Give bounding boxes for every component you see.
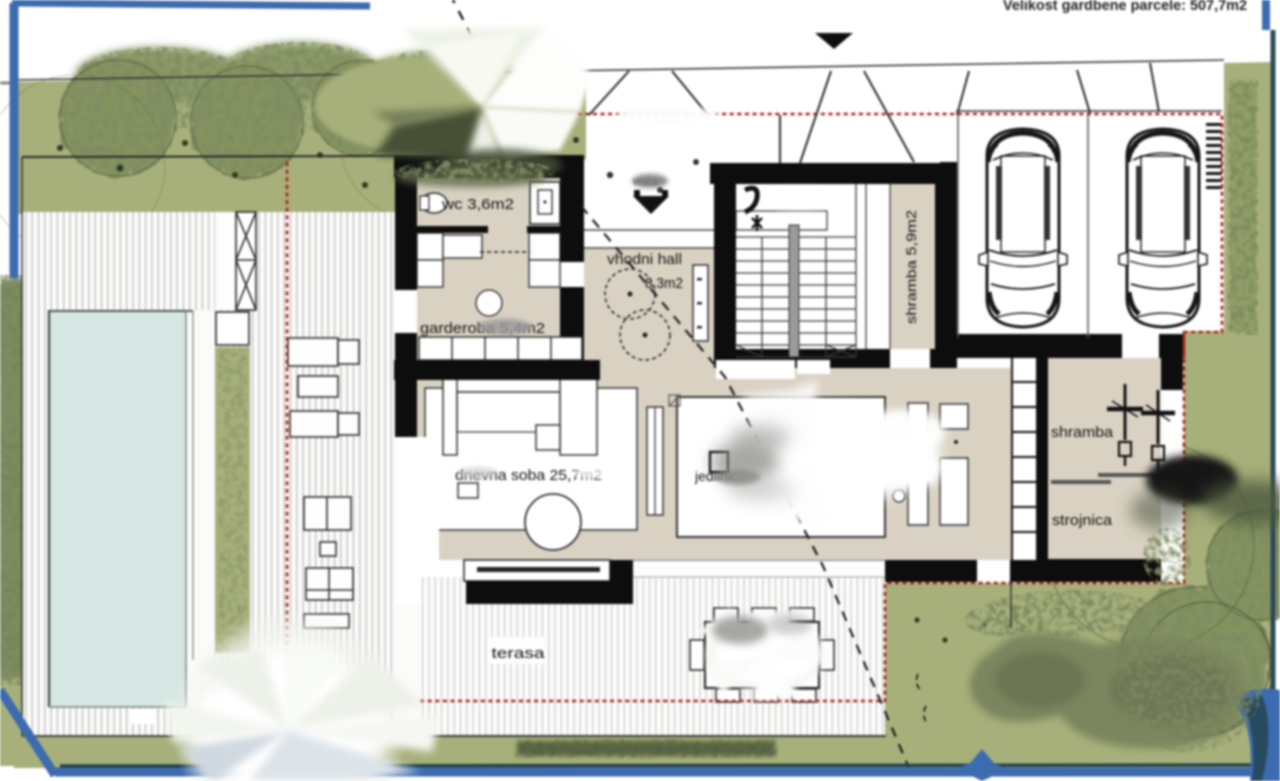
- svg-text:shramba: shramba: [1051, 425, 1114, 441]
- svg-text:shramba 5,9m2: shramba 5,9m2: [904, 210, 919, 324]
- svg-text:vhodni hall: vhodni hall: [607, 251, 682, 268]
- svg-text:strojnica: strojnica: [1052, 513, 1113, 529]
- svg-text:terasa: terasa: [492, 646, 546, 662]
- svg-text:Velikost gardbene parcele: 507: Velikost gardbene parcele: 507,7m2: [1003, 0, 1247, 14]
- svg-text:wc 3,6m2: wc 3,6m2: [441, 196, 514, 213]
